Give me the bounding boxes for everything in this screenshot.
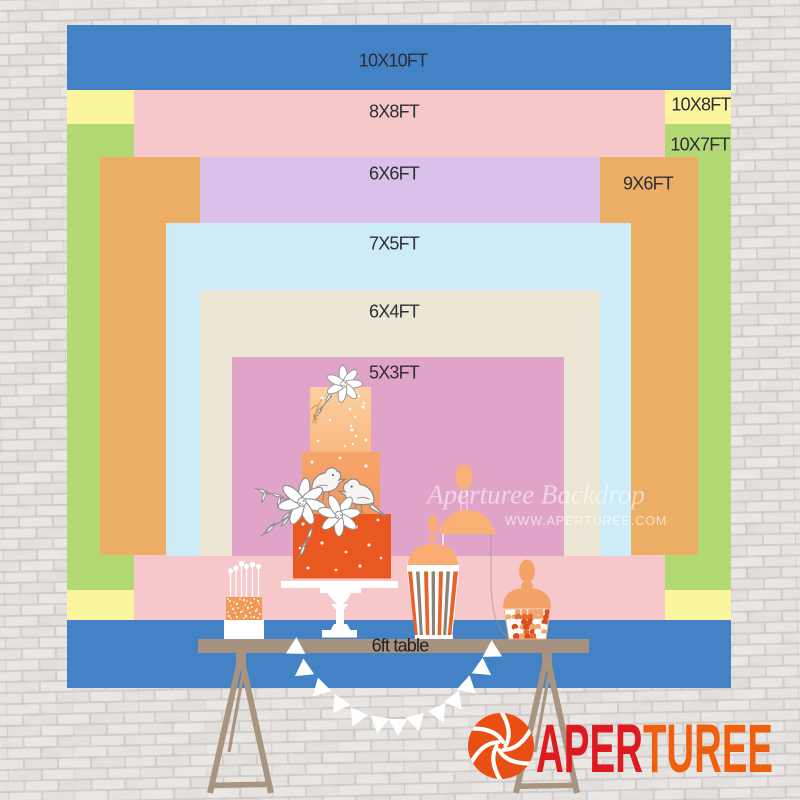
svg-text:APER: APER <box>536 710 643 787</box>
svg-text:TUREE: TUREE <box>643 710 773 787</box>
